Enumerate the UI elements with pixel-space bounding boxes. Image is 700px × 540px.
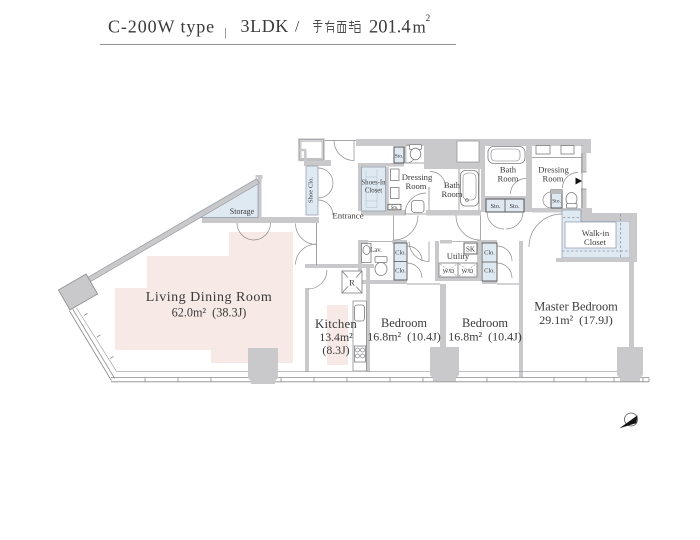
svg-text:3LDK: 3LDK xyxy=(241,16,289,36)
svg-text:2: 2 xyxy=(426,14,431,24)
svg-text:Bedroom: Bedroom xyxy=(462,316,508,330)
svg-text:Lav.: Lav. xyxy=(370,247,382,254)
svg-text:62.0m² (38.3J): 62.0m² (38.3J) xyxy=(172,306,247,320)
svg-text:201.4: 201.4 xyxy=(369,18,411,38)
svg-text:16.8m² (10.4J): 16.8m² (10.4J) xyxy=(367,330,441,344)
svg-text:Living Dining Room: Living Dining Room xyxy=(146,290,272,305)
svg-text:Sto.: Sto. xyxy=(490,203,501,210)
svg-text:Closet: Closet xyxy=(584,237,607,247)
svg-text:Room: Room xyxy=(497,174,518,184)
svg-text:Room: Room xyxy=(405,181,426,191)
svg-text:Clo.: Clo. xyxy=(395,268,406,275)
svg-text:Clo.: Clo. xyxy=(484,250,495,257)
svg-text:Sto.: Sto. xyxy=(552,199,561,205)
svg-text:Closet: Closet xyxy=(365,188,382,195)
svg-text:SK: SK xyxy=(466,246,475,254)
svg-text:Storage: Storage xyxy=(230,207,255,216)
svg-text:W/D: W/D xyxy=(443,269,455,275)
svg-text:/: / xyxy=(295,19,300,36)
svg-text:Sto.: Sto. xyxy=(391,206,399,211)
svg-text:m: m xyxy=(413,18,426,37)
svg-text:Master Bedroom: Master Bedroom xyxy=(534,300,618,314)
svg-text:R: R xyxy=(349,278,355,288)
svg-text:Bedroom: Bedroom xyxy=(381,316,427,330)
svg-text:Entrance: Entrance xyxy=(332,211,363,221)
svg-text:C-200W type: C-200W type xyxy=(108,17,215,37)
svg-text:Room: Room xyxy=(441,189,462,199)
svg-text:W/D: W/D xyxy=(462,269,474,275)
svg-text:Clo.: Clo. xyxy=(484,268,495,275)
svg-text:(8.3J): (8.3J) xyxy=(322,343,349,357)
svg-text:Clo.: Clo. xyxy=(395,250,406,257)
svg-text:Kitchen: Kitchen xyxy=(315,317,357,331)
svg-text:13.4m²: 13.4m² xyxy=(319,330,353,344)
svg-text:Sto.: Sto. xyxy=(509,203,520,210)
svg-text:Shoes-In: Shoes-In xyxy=(361,180,386,187)
svg-text:16.8m² (10.4J): 16.8m² (10.4J) xyxy=(448,330,522,344)
svg-text:Room: Room xyxy=(542,174,563,184)
svg-text:Shoe Clo.: Shoe Clo. xyxy=(308,177,315,203)
svg-text:29.1m² (17.9J): 29.1m² (17.9J) xyxy=(539,313,613,327)
svg-text:Sto.: Sto. xyxy=(395,154,404,160)
